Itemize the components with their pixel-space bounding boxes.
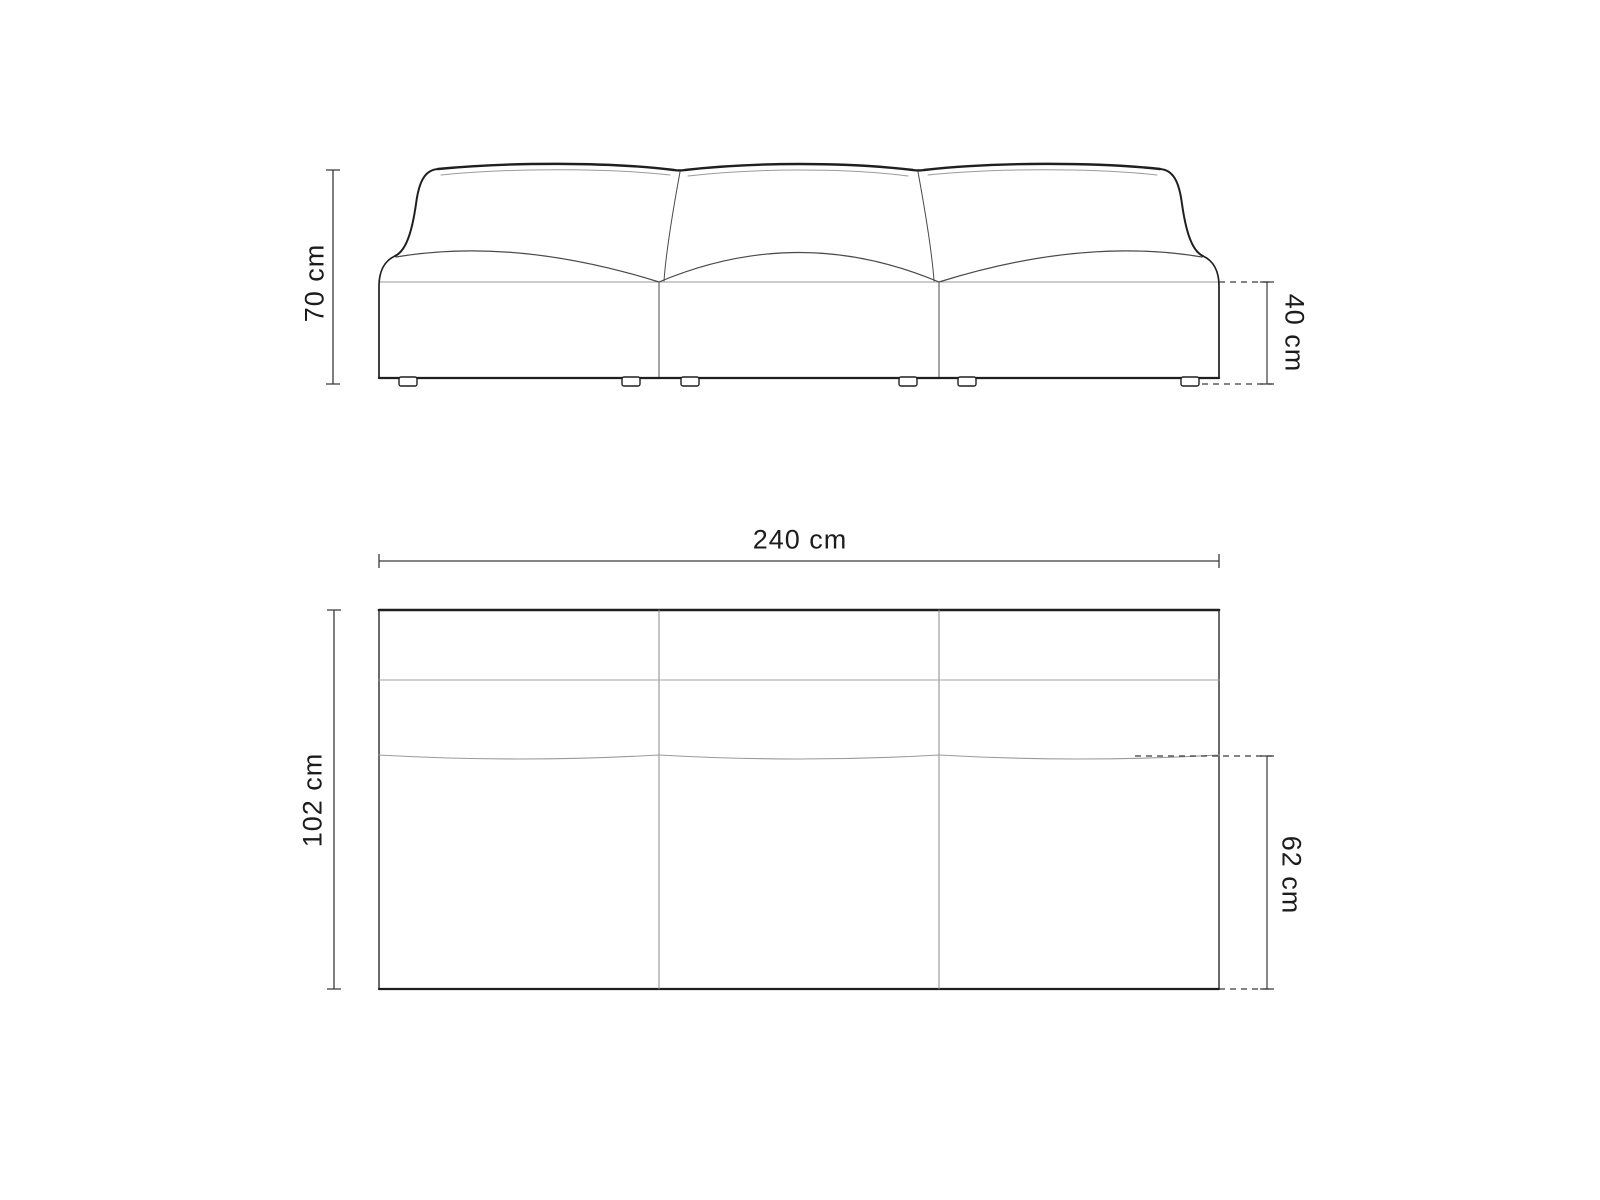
sofa-foot	[1181, 377, 1199, 386]
sofa-foot	[958, 377, 976, 386]
sofa-backrest-right-edge	[1160, 169, 1203, 256]
sofa-foot	[899, 377, 917, 386]
dimension-extension-dashed	[1202, 282, 1272, 384]
sofa-foot	[399, 377, 417, 386]
front-elevation-view	[379, 164, 1219, 386]
dimension-extension-dashed	[1135, 756, 1272, 989]
sofa-back-top-seam	[441, 170, 1157, 176]
sofa-foot	[681, 377, 699, 386]
sofa-seat-cushion-arcs	[396, 251, 1202, 282]
plan-module-dividers	[659, 610, 939, 989]
plan-outline	[379, 610, 1219, 989]
plan-seat-seam-line	[379, 755, 1219, 759]
dimension-label-overall-width: 240 cm	[753, 527, 848, 554]
dimension-label-seat-depth: 62 cm	[1278, 836, 1305, 915]
sofa-back-cushion-junctions	[664, 172, 934, 281]
sofa-right-edge	[1203, 256, 1219, 378]
dimension-overall-depth	[327, 610, 341, 989]
sofa-foot	[622, 377, 640, 386]
sofa-left-edge	[379, 256, 395, 378]
dimension-label-overall-depth: 102 cm	[300, 753, 327, 848]
top-plan-view	[379, 610, 1219, 989]
sofa-base-module-seams	[659, 282, 939, 378]
dimension-seat-height	[1202, 282, 1274, 384]
dimension-label-overall-height: 70 cm	[302, 244, 329, 323]
diagram-linework	[0, 0, 1600, 1200]
sofa-backrest-left-edge	[395, 169, 438, 256]
dimension-label-seat-height: 40 cm	[1281, 294, 1308, 373]
sofa-dimension-diagram: 70 cm 40 cm 240 cm 102 cm 62 cm	[0, 0, 1600, 1200]
dimension-overall-width	[379, 554, 1219, 568]
dimension-seat-depth	[1135, 756, 1274, 989]
